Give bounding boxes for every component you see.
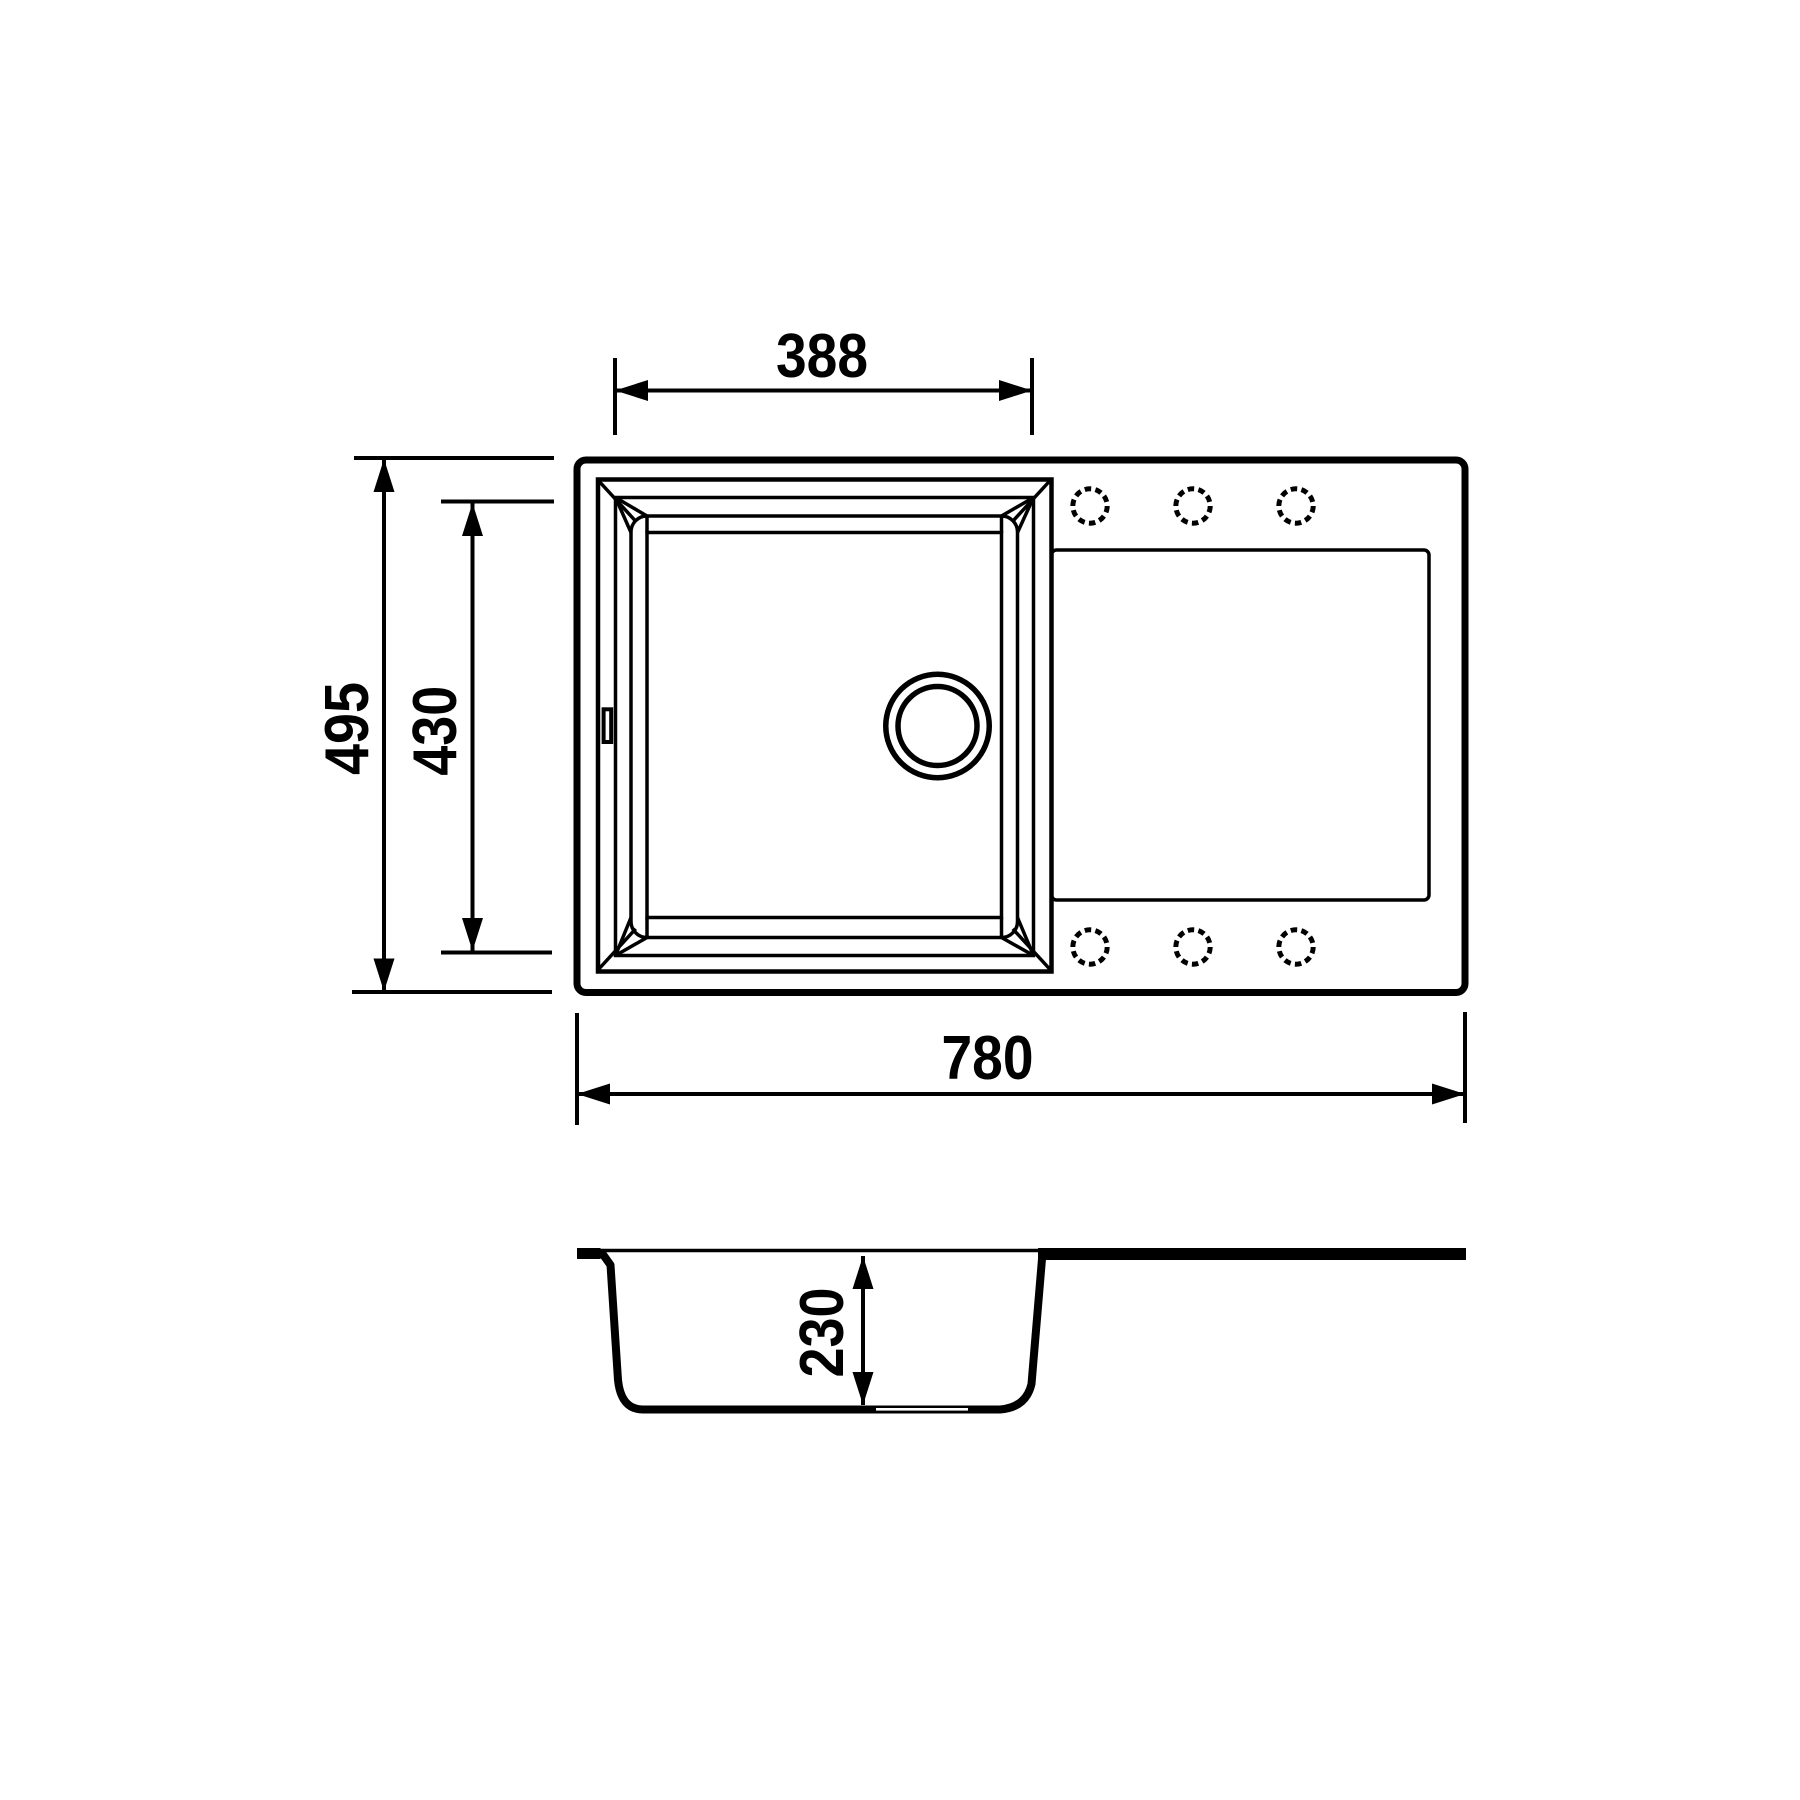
svg-text:230: 230 (788, 1288, 857, 1378)
svg-text:495: 495 (313, 682, 382, 775)
svg-text:430: 430 (401, 686, 470, 776)
svg-text:780: 780 (942, 1024, 1034, 1093)
svg-text:388: 388 (776, 322, 868, 391)
